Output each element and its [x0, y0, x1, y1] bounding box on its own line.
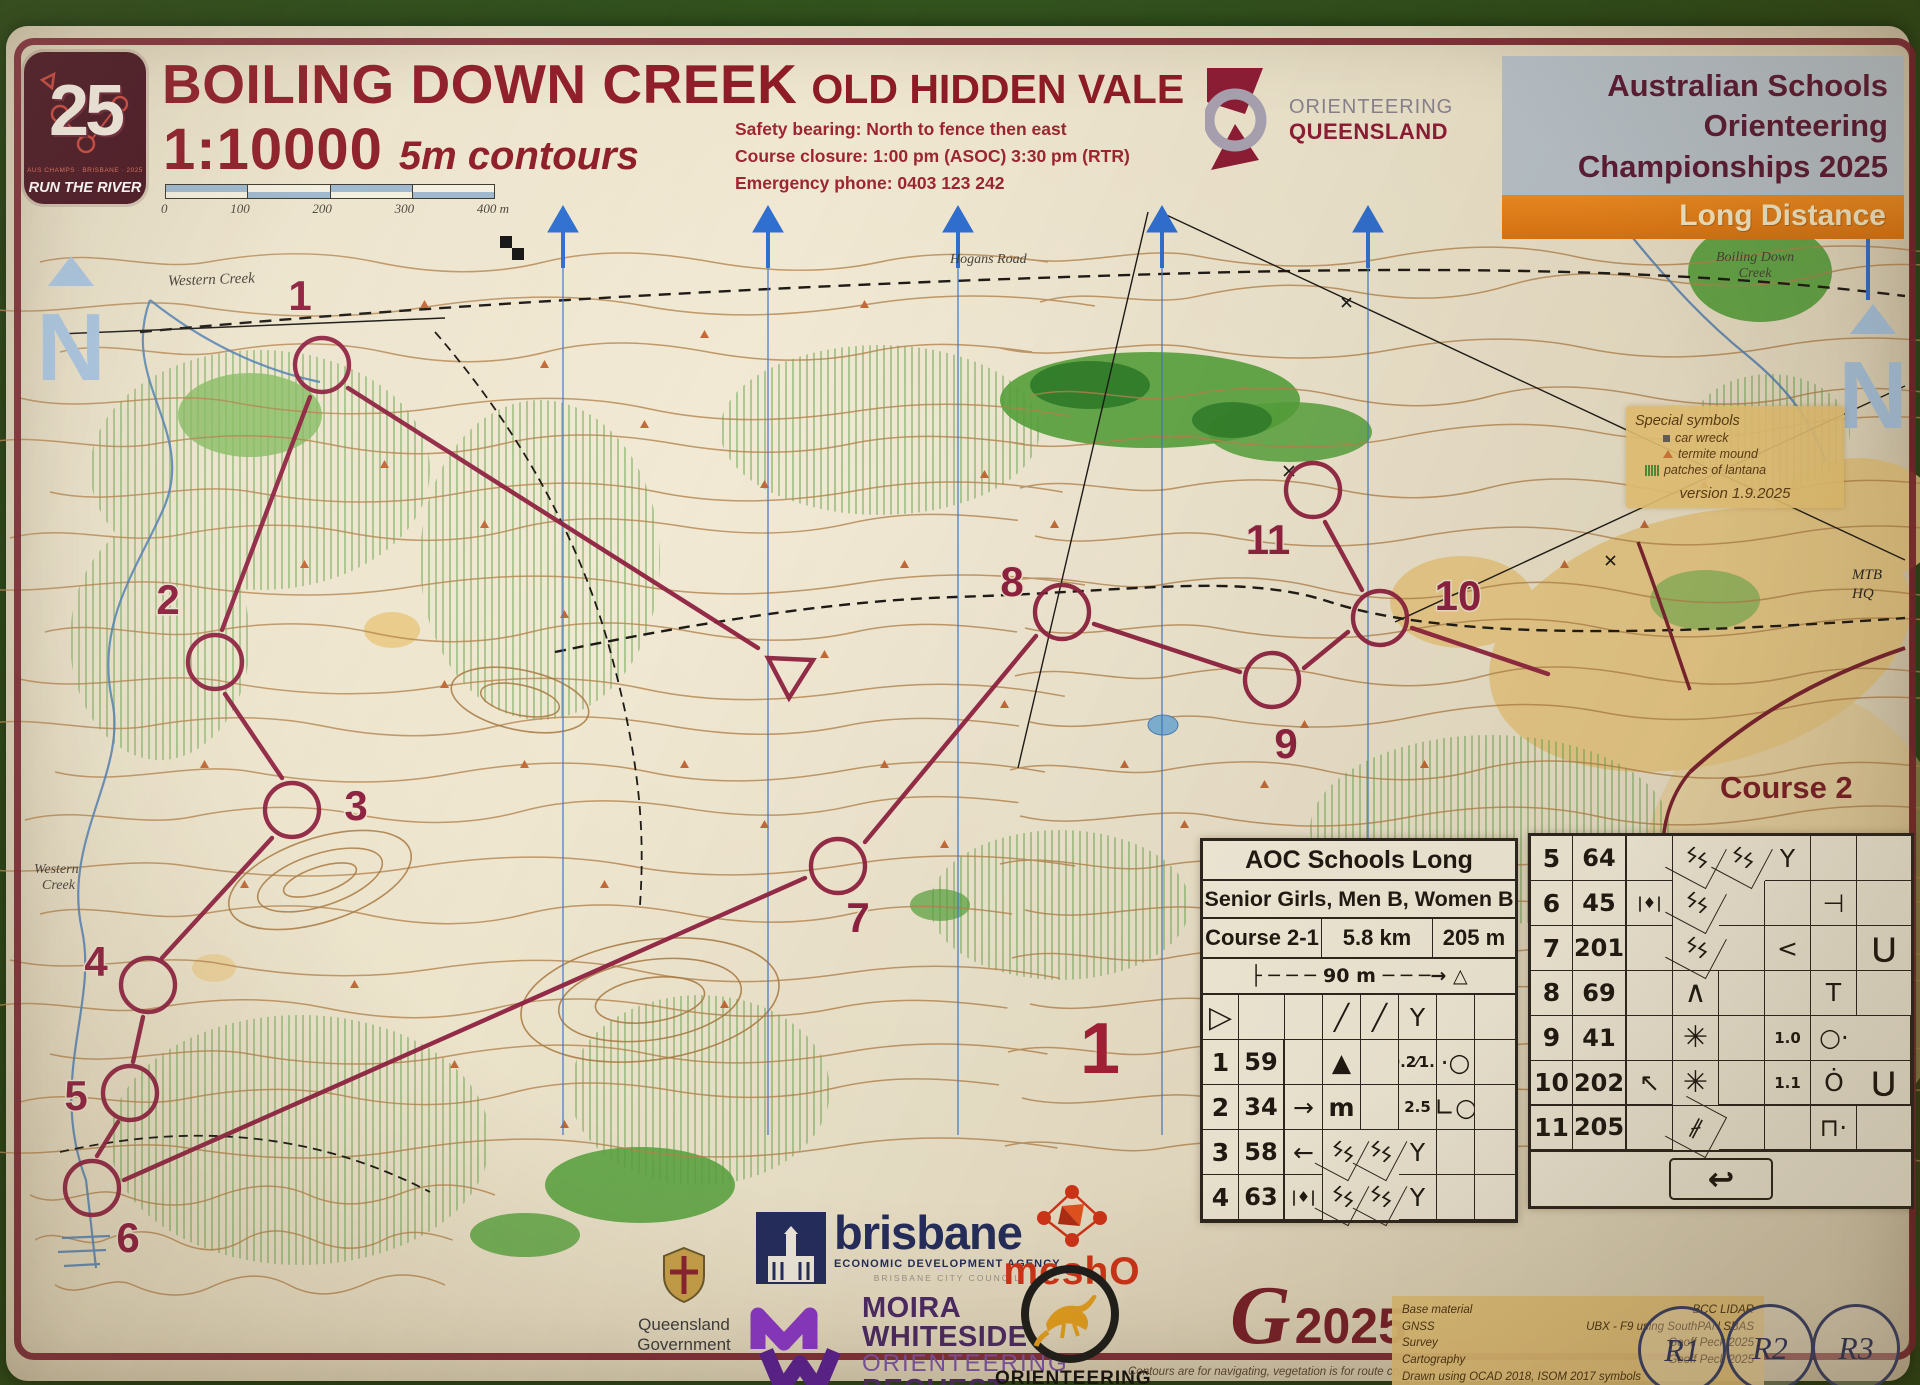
map-sheet-number: 1	[1080, 1008, 1120, 1090]
car-wreck-icon	[1663, 435, 1670, 442]
desc-cell	[1811, 836, 1857, 881]
desc-cell: 1	[1203, 1040, 1239, 1085]
desc-cell: 6	[1531, 881, 1573, 926]
taped-distance: 90 m	[1323, 965, 1376, 987]
desc-cell: 45	[1573, 881, 1627, 926]
course-leg	[1094, 624, 1240, 672]
logo-25-subtext: AUS CHAMPS · BRISBANE · 2025	[24, 167, 146, 174]
map-title-line: BOILING DOWN CREEKOLD HIDDEN VALE	[162, 52, 1184, 116]
desc-cell	[1765, 970, 1811, 1016]
event-line1: Australian Schools	[1512, 66, 1888, 106]
desc-cell: 11	[1531, 1104, 1573, 1150]
relay-mark-r1: R1	[1638, 1306, 1726, 1385]
desc-cell	[1239, 995, 1285, 1040]
desc-cell: 2.5	[1399, 1085, 1437, 1130]
svg-text:N: N	[36, 294, 105, 401]
desc-cell	[1811, 926, 1857, 971]
desc-cell: ✳	[1673, 1016, 1719, 1061]
desc-cell	[1765, 1104, 1811, 1150]
map-scale: 1:10000	[163, 117, 383, 182]
desc-cell: 59	[1239, 1040, 1285, 1085]
credit-label: Survey	[1402, 1335, 1438, 1352]
oa-line1: ORIENTEERING	[995, 1368, 1145, 1385]
desc-cell	[1857, 1104, 1911, 1150]
desc-cell: 7	[1531, 926, 1573, 971]
desc-cell: ○·	[1811, 1016, 1857, 1061]
desc-cell: T	[1811, 970, 1857, 1016]
scale-segment	[331, 185, 413, 198]
refreshment-icon: ⋃	[1857, 926, 1911, 971]
desc-cell	[1475, 995, 1515, 1040]
qld-crest-icon	[652, 1242, 716, 1306]
scale-tick: 400 m	[477, 201, 509, 217]
desc-cell: 41	[1573, 1016, 1627, 1061]
map-photo: 1 2 3 4 5 6 7 8 9 10 11 25 AUS CHAMPS · …	[0, 0, 1920, 1385]
start-triangle	[768, 658, 813, 698]
credit-label: GNSS	[1402, 1319, 1435, 1336]
special-symbols-title: Special symbols	[1635, 413, 1835, 429]
control-number-label: 11	[1246, 516, 1290, 563]
desc-cell	[1857, 1016, 1911, 1061]
desc-cell: ←	[1285, 1130, 1323, 1175]
course-leg	[225, 694, 282, 778]
desc-cell: ▲	[1323, 1040, 1361, 1085]
contours-note: Contours are for navigating, vegetation …	[1128, 1366, 1420, 1378]
desc-cell: Y	[1399, 1175, 1437, 1220]
desc-cell: ✳	[1673, 1061, 1719, 1106]
desc-cell: 63	[1239, 1175, 1285, 1220]
svg-text:N: N	[1838, 342, 1907, 449]
refreshment-icon: ⋃	[1857, 1061, 1911, 1106]
desc-cell	[1719, 926, 1765, 971]
orienteering-australia-logo: ORIENTEERING AUSTRALIA	[995, 1262, 1145, 1385]
label-western-creek-top: Western Creek	[168, 270, 255, 290]
desc-cell: <	[1765, 926, 1811, 971]
checker-mark	[500, 236, 524, 260]
event-banner: Australian Schools Orienteering Champion…	[1502, 56, 1904, 239]
desc-cell	[1719, 1104, 1765, 1150]
special-item-lantana: patches of lantana	[1664, 463, 1766, 477]
desc-cell: Y	[1765, 836, 1811, 881]
label-western: Western	[34, 862, 79, 878]
desc-cell: ·○	[1437, 1040, 1475, 1085]
course-id: Course 2-1	[1203, 919, 1322, 957]
oq-line1: ORIENTEERING	[1289, 96, 1453, 119]
map-subtitle: OLD HIDDEN VALE	[811, 66, 1184, 112]
desc-cell: ϟϟ	[1711, 828, 1773, 889]
course-leg	[133, 1017, 143, 1062]
credit-label: Cartography	[1402, 1352, 1465, 1369]
desc-cell: ⊓·	[1811, 1104, 1857, 1150]
desc-cell: 1.0	[1765, 1016, 1811, 1061]
desc-cell: ∧	[1673, 970, 1719, 1016]
label-boiling-down-2: Creek	[1716, 266, 1794, 282]
run-the-river-logo: 25 AUS CHAMPS · BRISBANE · 2025 RUN THE …	[24, 52, 146, 204]
desc-cell: 64	[1573, 836, 1627, 881]
desc-cell: m	[1323, 1085, 1361, 1130]
control-number-label: 4	[84, 938, 108, 985]
g2025-logo: G 2025	[1230, 1282, 1406, 1355]
desc-cell	[1475, 1040, 1515, 1085]
desc-cell: 201	[1573, 926, 1627, 971]
course-climb: 205 m	[1433, 919, 1515, 957]
label-boiling-down-1: Boiling Down	[1716, 250, 1794, 266]
desc-cell: 0.2⁄1.2	[1399, 1040, 1437, 1085]
desc-cell	[1627, 836, 1673, 881]
taped-post: ─ ─ ─→ △	[1383, 965, 1468, 987]
desc-cell: 10	[1531, 1061, 1573, 1106]
desc-cell	[1857, 970, 1911, 1016]
label-hogans-road: Hogans Road	[950, 252, 1027, 268]
pond	[1148, 715, 1178, 735]
oq-icon	[1205, 62, 1279, 178]
north-n-icon: N	[26, 252, 116, 407]
desc-cell: Y	[1399, 1130, 1437, 1175]
event-line2: Orienteering	[1512, 106, 1888, 146]
desc-cell	[1475, 1085, 1515, 1130]
control-circle	[65, 1161, 119, 1215]
scale-bar-segments	[165, 184, 495, 199]
logo-25-number: 25	[24, 70, 146, 152]
brisbane-cityhall-icon	[756, 1212, 826, 1284]
course-closure: Course closure: 1:00 pm (ASOC) 3:30 pm (…	[735, 143, 1130, 170]
control-number-label: 6	[116, 1214, 139, 1261]
desc-cell	[1719, 970, 1765, 1016]
desc-cell: 205	[1573, 1104, 1627, 1150]
desc-cell	[1857, 836, 1911, 881]
desc-cell: 1.1	[1765, 1061, 1811, 1106]
scale-tick: 300	[395, 201, 415, 217]
desc-cell	[1857, 881, 1911, 926]
desc-cell: Ȯ	[1811, 1061, 1857, 1106]
qld-line1: Queensland	[620, 1315, 748, 1335]
desc-cell	[1437, 1130, 1475, 1175]
desc-cell: 9	[1531, 1016, 1573, 1061]
taped-route-row: ├ ─ ─ ─ 90 m ─ ─ ─→ △	[1203, 959, 1515, 995]
desc-cell	[1475, 1130, 1515, 1175]
scale-segment	[413, 185, 494, 198]
control-number-label: 2	[156, 576, 179, 623]
desc-cell: →	[1285, 1085, 1323, 1130]
control-number-label: 5	[64, 1072, 87, 1119]
label-mtb: MTB	[1852, 566, 1882, 585]
control-circle	[121, 958, 175, 1012]
desc-cell: 4	[1203, 1175, 1239, 1220]
desc-cell	[1361, 1040, 1399, 1085]
orienteering-queensland-logo: ORIENTEERING QUEENSLAND	[1205, 62, 1453, 178]
start-symbol: ▷	[1203, 995, 1239, 1040]
desc-cell: 34	[1239, 1085, 1285, 1130]
event-discipline: Long Distance	[1502, 195, 1904, 239]
desc-cell	[1361, 1085, 1399, 1130]
special-item-car-wreck: car wreck	[1675, 431, 1728, 445]
event-line3: Championships 2025	[1512, 147, 1888, 187]
desc-cell	[1437, 1175, 1475, 1220]
scale-bar: 0 100 200 300 400 m	[165, 184, 495, 217]
special-item-termite-mound: termite mound	[1678, 447, 1758, 461]
course-leg	[162, 838, 272, 958]
termite-mound-icon	[1663, 450, 1673, 458]
symbol-grid: ▷ ╱ ╱ Y 1 59 ▲ 0.2⁄1.2 ·○ 2 34 → m 2.5 ∟…	[1203, 995, 1515, 1220]
map-version: version 1.9.2025	[1635, 485, 1835, 502]
desc-cell	[1285, 1040, 1323, 1085]
desc-cell	[1437, 995, 1475, 1040]
contour-interval: 5m contours	[399, 134, 639, 178]
control-circle	[1286, 463, 1340, 517]
control-number-label: 8	[1000, 558, 1023, 605]
oq-line2: QUEENSLAND	[1289, 119, 1453, 144]
label-boiling-down-creek: Boiling Down Creek	[1716, 250, 1794, 282]
special-symbols-box: Special symbols car wreck termite mound …	[1626, 406, 1844, 508]
label-mtb-hq: MTB HQ	[1852, 566, 1882, 604]
control-number-label: 3	[344, 782, 367, 829]
logo-25-label: RUN THE RIVER	[24, 180, 146, 196]
desc-cell: Y	[1399, 995, 1437, 1040]
scale-segment	[166, 185, 248, 198]
control-descriptions-left: AOC Schools Long Senior Girls, Men B, Wo…	[1200, 838, 1518, 1223]
desc-cell	[1285, 995, 1323, 1040]
control-number-label: 9	[1274, 720, 1297, 767]
credit-label: Base material	[1402, 1302, 1472, 1319]
course-leg	[865, 636, 1036, 842]
desc-cell	[1627, 970, 1673, 1016]
label-hq: HQ	[1852, 585, 1882, 604]
desc-cell: ╱	[1361, 995, 1399, 1040]
scale-bar-ticks: 0 100 200 300 400 m	[161, 201, 509, 217]
desc-cell	[1627, 1104, 1673, 1150]
label-creek: Creek	[42, 878, 79, 894]
desc-cell	[1627, 1016, 1673, 1061]
g2025-year: 2025	[1295, 1297, 1406, 1355]
desc-cell	[1627, 926, 1673, 971]
course-label: Course 2	[1720, 770, 1853, 806]
course-classes: Senior Girls, Men B, Women B	[1203, 881, 1515, 919]
desc-cell: 69	[1573, 970, 1627, 1016]
control-number-label: 7	[846, 894, 869, 941]
desc-cell: 8	[1531, 970, 1573, 1016]
finish-row: ↩	[1531, 1150, 1911, 1206]
course-length: 5.8 km	[1322, 919, 1433, 957]
label-western-creek-left: Western Creek	[34, 862, 79, 894]
desc-cell: 3	[1203, 1130, 1239, 1175]
desc-cell: 2	[1203, 1085, 1239, 1130]
control-number-label: 1	[288, 272, 311, 319]
queensland-government-logo: Queensland Government	[620, 1242, 748, 1356]
desc-cell: |♦|	[1285, 1175, 1323, 1220]
safety-bearing: Safety bearing: North to fence then east	[735, 116, 1130, 143]
scale-segment	[248, 185, 330, 198]
desc-cell	[1765, 881, 1811, 926]
scale-tick: 0	[161, 201, 168, 217]
relay-mark-r3: R3	[1812, 1304, 1900, 1385]
emergency-phone: Emergency phone: 0403 123 242	[735, 170, 1130, 197]
mw-monogram-icon	[748, 1305, 852, 1385]
desc-cell: 58	[1239, 1130, 1285, 1175]
taped-pre: ├ ─ ─ ─	[1250, 965, 1316, 987]
kangaroo-icon	[1018, 1262, 1122, 1366]
scale-tick: 100	[230, 201, 250, 217]
mesho-network-icon	[1032, 1182, 1112, 1248]
desc-cell: 5	[1531, 836, 1573, 881]
desc-cell: ⊣	[1811, 881, 1857, 926]
control-circle	[1245, 653, 1299, 707]
control-circle	[265, 783, 319, 837]
control-number-label: 10	[1435, 572, 1482, 619]
relay-mark-r2: R2	[1726, 1304, 1814, 1385]
desc-cell	[1719, 1061, 1765, 1106]
lantana-icon	[1645, 465, 1659, 476]
symbol-grid: 5 64 ϟϟ ϟϟ Y 6 45 |♦| ϟϟ ⊣ 7 201 ϟϟ < ⋃	[1531, 836, 1911, 1150]
qld-line2: Government	[620, 1335, 748, 1355]
finish-symbol: ↩	[1669, 1158, 1773, 1200]
map-title: BOILING DOWN CREEK	[162, 53, 797, 115]
desc-cell: ∟○	[1437, 1085, 1475, 1130]
g2025-g: G	[1230, 1282, 1291, 1349]
desc-cell: |♦|	[1627, 881, 1673, 926]
course-leg	[1325, 522, 1362, 590]
scale-tick: 200	[312, 201, 332, 217]
desc-cell: ↖	[1627, 1061, 1673, 1106]
desc-cell: 202	[1573, 1061, 1627, 1106]
desc-cell: ╱	[1323, 995, 1361, 1040]
desc-cell	[1719, 881, 1765, 926]
event-course-title: AOC Schools Long	[1203, 841, 1515, 881]
control-descriptions-right: 5 64 ϟϟ ϟϟ Y 6 45 |♦| ϟϟ ⊣ 7 201 ϟϟ < ⋃	[1528, 833, 1914, 1209]
desc-cell	[1475, 1175, 1515, 1220]
map-scale-line: 1:100005m contours	[163, 116, 639, 183]
desc-cell	[1719, 1016, 1765, 1061]
safety-notes: Safety bearing: North to fence then east…	[735, 116, 1130, 197]
